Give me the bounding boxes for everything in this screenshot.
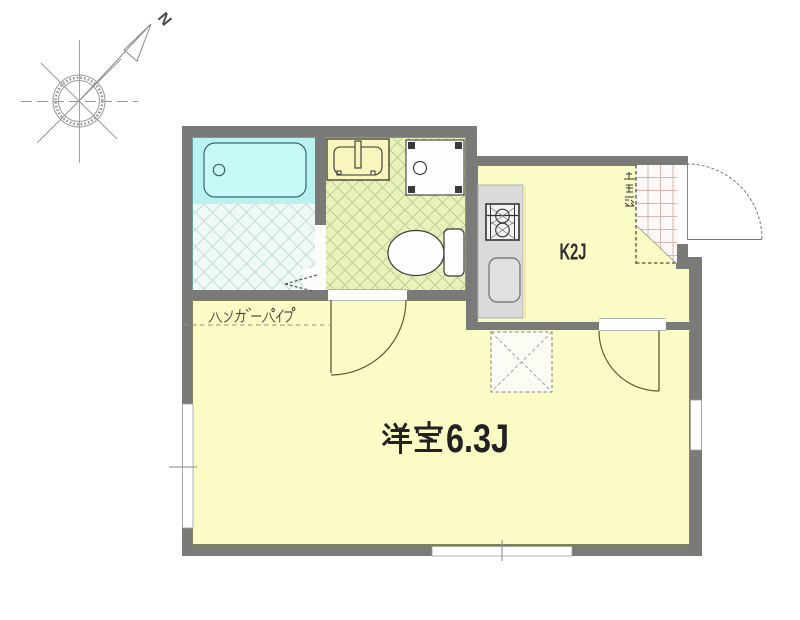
svg-text:K2J: K2J — [560, 239, 587, 265]
svg-text:6.3J: 6.3J — [446, 417, 509, 461]
